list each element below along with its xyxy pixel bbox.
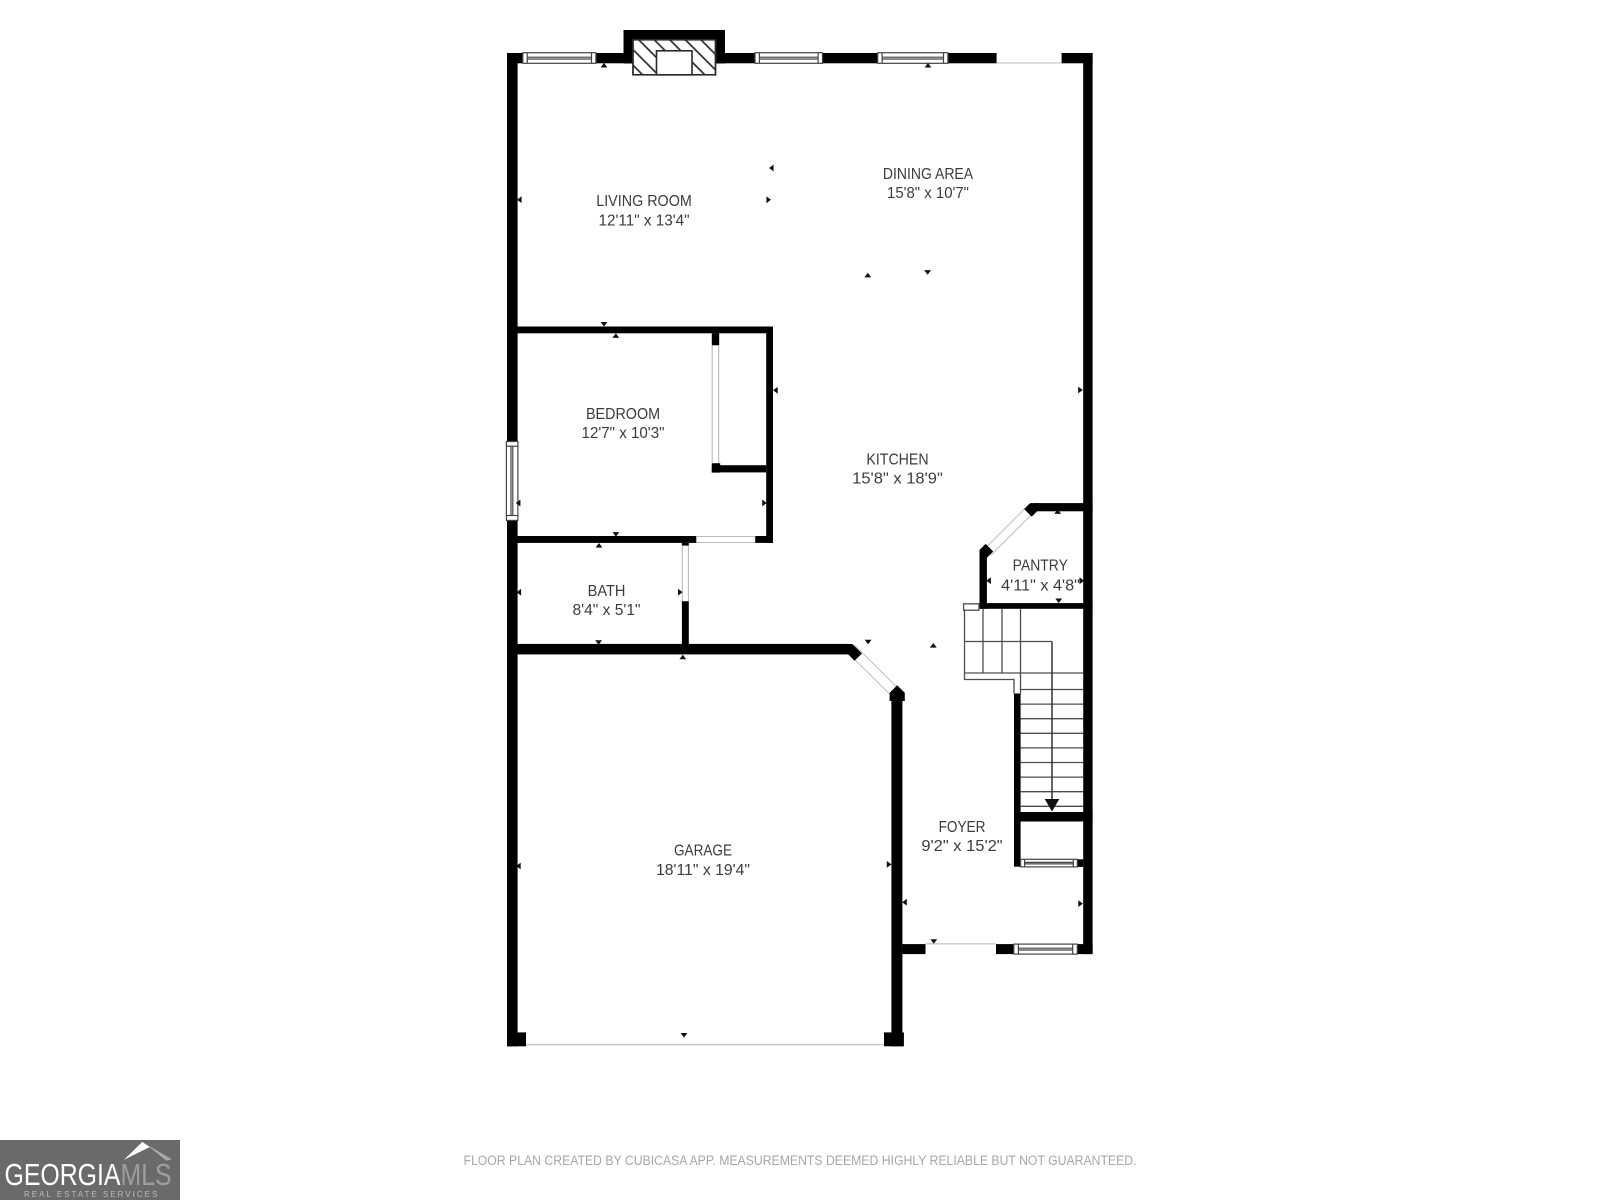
svg-text:4'11" x 4'8": 4'11" x 4'8" (1001, 577, 1080, 595)
svg-text:9'2" x 15'2": 9'2" x 15'2" (921, 837, 1003, 855)
svg-text:BEDROOM: BEDROOM (586, 405, 660, 423)
svg-text:8'4" x 5'1": 8'4" x 5'1" (572, 602, 640, 619)
svg-text:12'7" x 10'3": 12'7" x 10'3" (582, 425, 665, 442)
svg-text:REAL ESTATE SERVICES: REAL ESTATE SERVICES (24, 1190, 159, 1199)
svg-text:15'8" x 18'9": 15'8" x 18'9" (852, 470, 943, 488)
svg-text:12'11" x 13'4": 12'11" x 13'4" (598, 212, 689, 229)
svg-text:18'11" x 19'4": 18'11" x 19'4" (656, 862, 750, 879)
svg-text:KITCHEN: KITCHEN (866, 451, 928, 469)
svg-text:LIVING ROOM: LIVING ROOM (596, 192, 692, 210)
svg-text:FOYER: FOYER (939, 819, 986, 836)
svg-text:GEORGIAMLS: GEORGIAMLS (5, 1157, 172, 1191)
svg-text:PANTRY: PANTRY (1013, 557, 1068, 575)
svg-text:15'8" x 10'7": 15'8" x 10'7" (887, 185, 969, 203)
svg-text:FLOOR PLAN CREATED BY CUBICASA: FLOOR PLAN CREATED BY CUBICASA APP. MEAS… (463, 1152, 1136, 1168)
svg-text:BATH: BATH (588, 582, 626, 600)
svg-text:DINING AREA: DINING AREA (883, 165, 973, 183)
svg-text:GARAGE: GARAGE (674, 843, 732, 860)
